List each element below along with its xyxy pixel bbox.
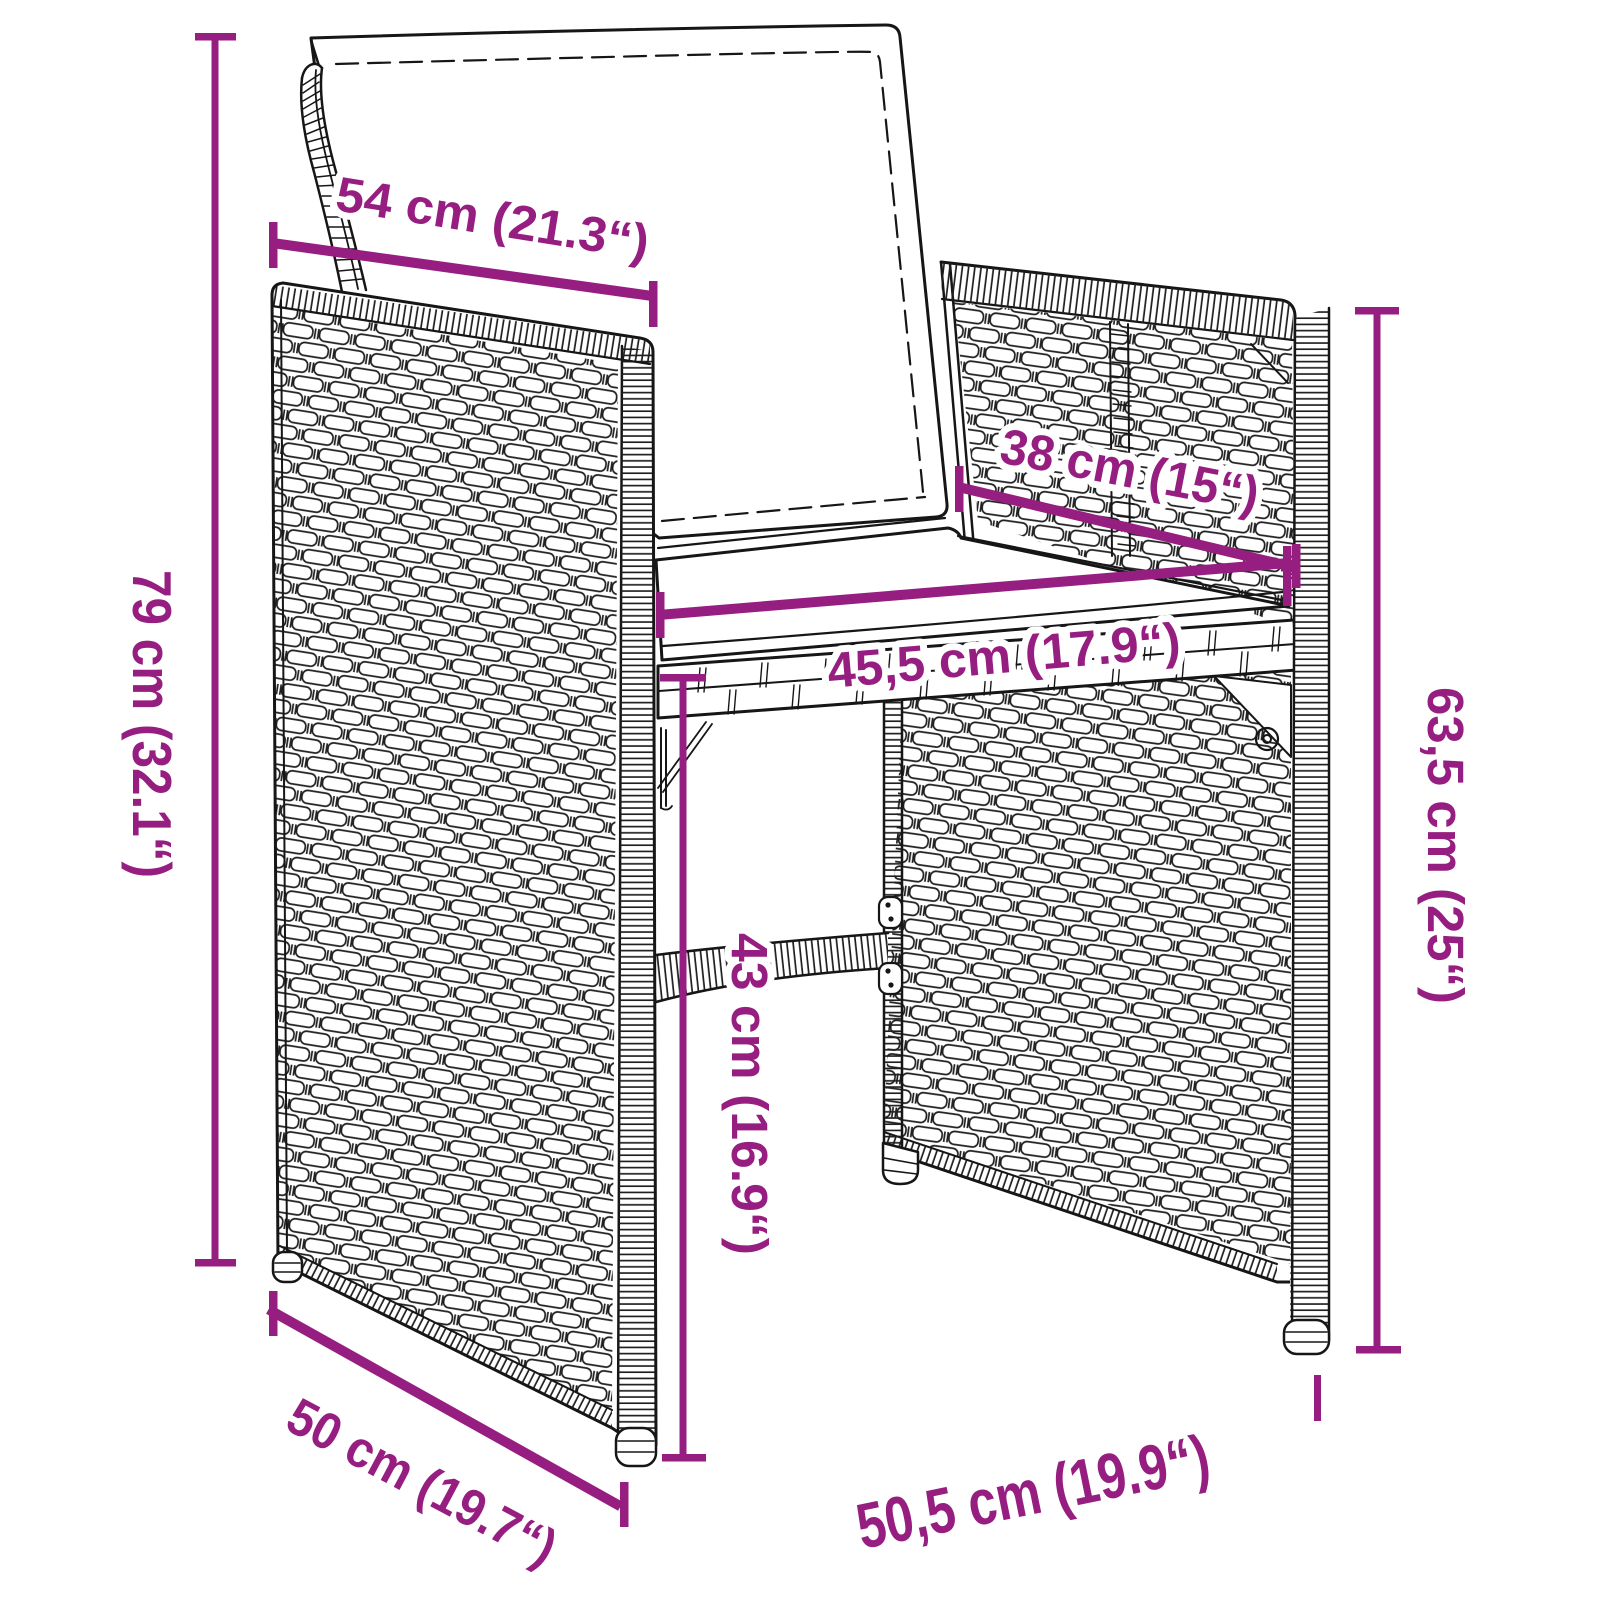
svg-text:43 cm (16.9“): 43 cm (16.9“) [721,933,778,1255]
svg-text:79 cm (32.1“): 79 cm (32.1“) [121,570,183,878]
svg-text:63,5 cm (25“): 63,5 cm (25“) [1417,687,1474,1004]
